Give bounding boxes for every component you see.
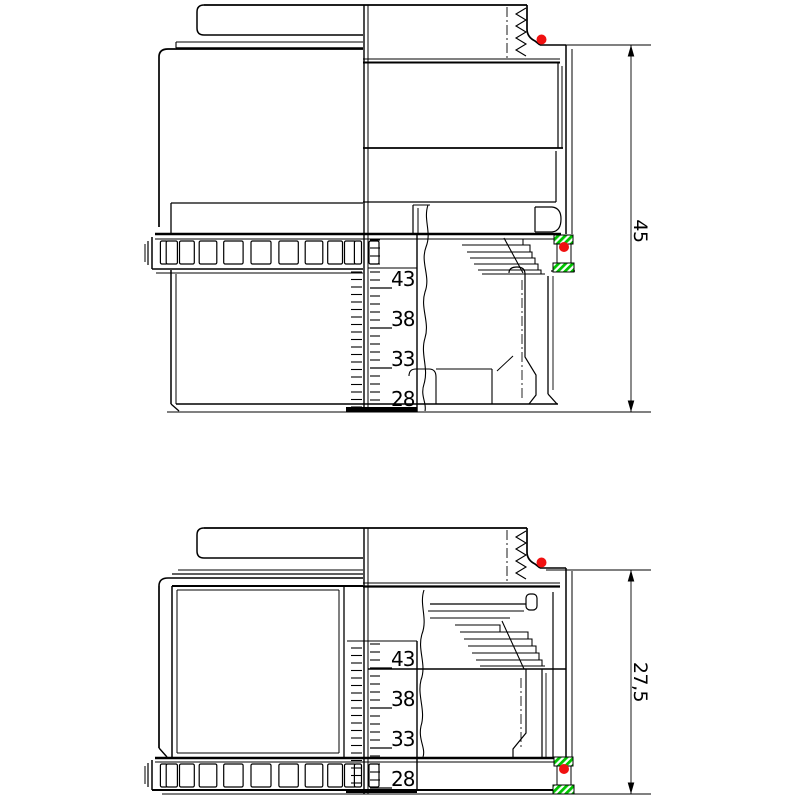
knurl-cell	[251, 241, 271, 264]
view-extended: 43 38 33 28	[145, 5, 651, 412]
seal-hatch	[553, 263, 574, 272]
thread-zigzag-icon	[516, 531, 526, 579]
dimension-label: 27,5	[629, 662, 651, 702]
thread-diagonal	[502, 621, 524, 669]
knurl-cell	[180, 241, 195, 264]
arrow-down-icon	[628, 783, 635, 795]
knurl-cell	[328, 241, 343, 264]
knurl-cell	[279, 764, 298, 787]
knurl-cell	[251, 764, 271, 787]
thread-steps	[462, 239, 545, 274]
mount-flange	[553, 568, 574, 794]
scale-label: 28	[391, 767, 415, 791]
thread-zigzag-icon	[516, 8, 526, 56]
knurl-cell	[180, 764, 195, 787]
inner-detail	[497, 356, 513, 371]
distance-scale: 43 38 33 28	[346, 5, 417, 412]
red-marker-dot	[559, 242, 569, 252]
outer-barrel	[159, 578, 363, 757]
scale-label: 38	[391, 307, 415, 331]
knurl-cell	[328, 764, 343, 787]
upper-barrel	[155, 49, 563, 239]
knurl-cell	[224, 764, 243, 787]
drawing-canvas: 43 38 33 28	[0, 0, 800, 800]
thread-steps	[455, 625, 545, 666]
knurl-cell	[166, 241, 177, 264]
barrel-top-edge	[159, 49, 363, 57]
distance-scale: 43 38 33 28	[346, 528, 417, 794]
cap-left-edge	[197, 5, 363, 35]
chamfer	[159, 748, 167, 757]
arrow-up-icon	[628, 570, 635, 582]
arrow-down-icon	[628, 401, 635, 413]
scale-label: 38	[391, 687, 415, 711]
inner-barrel-profile	[509, 267, 536, 404]
dimension-label: 45	[629, 219, 651, 242]
front-ring	[176, 5, 566, 63]
scale-label: 28	[391, 387, 415, 411]
technical-drawing: 43 38 33 28	[0, 0, 800, 800]
knurl-cell	[199, 241, 217, 264]
knurl-cell	[369, 764, 379, 787]
view-collapsed: 43 38 33 28	[145, 528, 651, 794]
cap-left-edge	[197, 528, 363, 558]
retainer-ring-section	[535, 207, 561, 232]
break-line	[420, 590, 424, 757]
scale-label: 43	[391, 647, 415, 671]
knurl-cell	[369, 241, 379, 264]
scale-label: 43	[391, 267, 415, 291]
knurl-cell	[199, 764, 217, 787]
red-marker-dot	[537, 35, 547, 45]
seal-hatch	[553, 785, 574, 794]
red-marker-dot	[537, 558, 547, 568]
knurl-cell	[305, 764, 323, 787]
knurled-focus-ring	[145, 237, 379, 273]
scale-label: 33	[391, 347, 415, 371]
knurl-cell	[166, 764, 177, 787]
barrel-top-edge	[159, 578, 363, 586]
chamfer	[171, 404, 179, 411]
arrow-up-icon	[628, 45, 635, 57]
break-line	[423, 205, 428, 411]
knurl-cell	[354, 241, 361, 264]
knurl-cell	[305, 241, 323, 264]
chamfer	[548, 394, 557, 404]
inner-barrel-profile	[513, 669, 526, 757]
knurl-cell	[224, 241, 243, 264]
retainer-ring-section	[526, 594, 537, 610]
red-marker-dot	[559, 764, 569, 774]
broken-out-section	[409, 205, 575, 411]
knurl-cell	[279, 241, 298, 264]
scale-label: 33	[391, 727, 415, 751]
